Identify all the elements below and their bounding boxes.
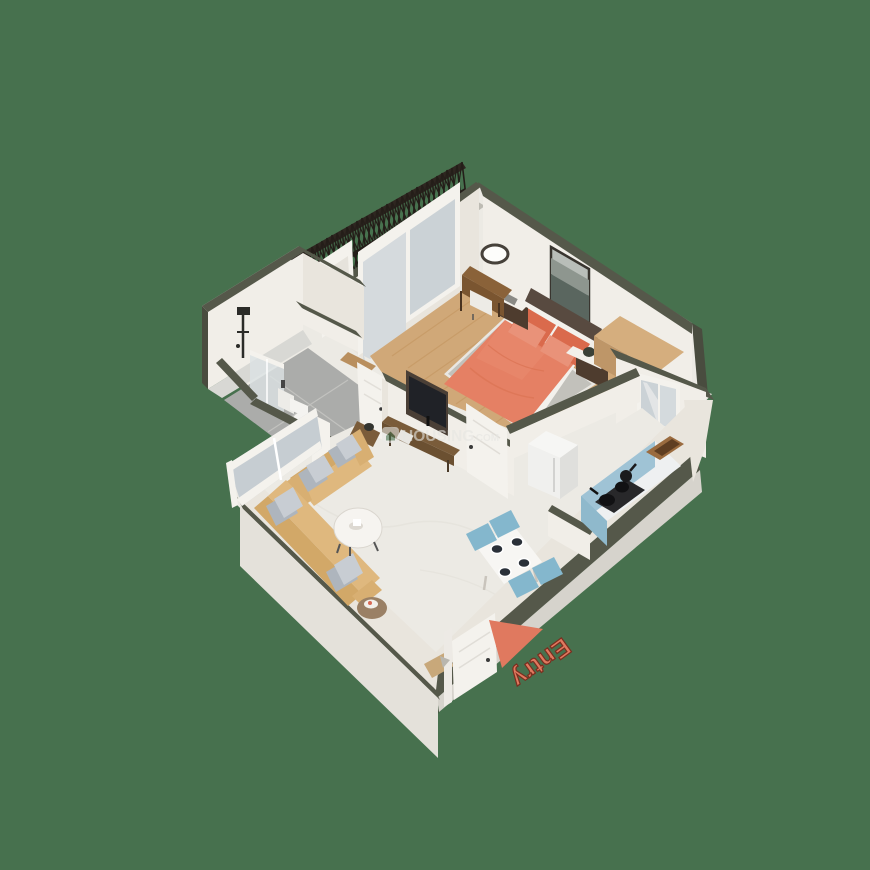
- svg-text:HOUSING: HOUSING: [402, 428, 474, 445]
- svg-text:.COM: .COM: [473, 433, 499, 444]
